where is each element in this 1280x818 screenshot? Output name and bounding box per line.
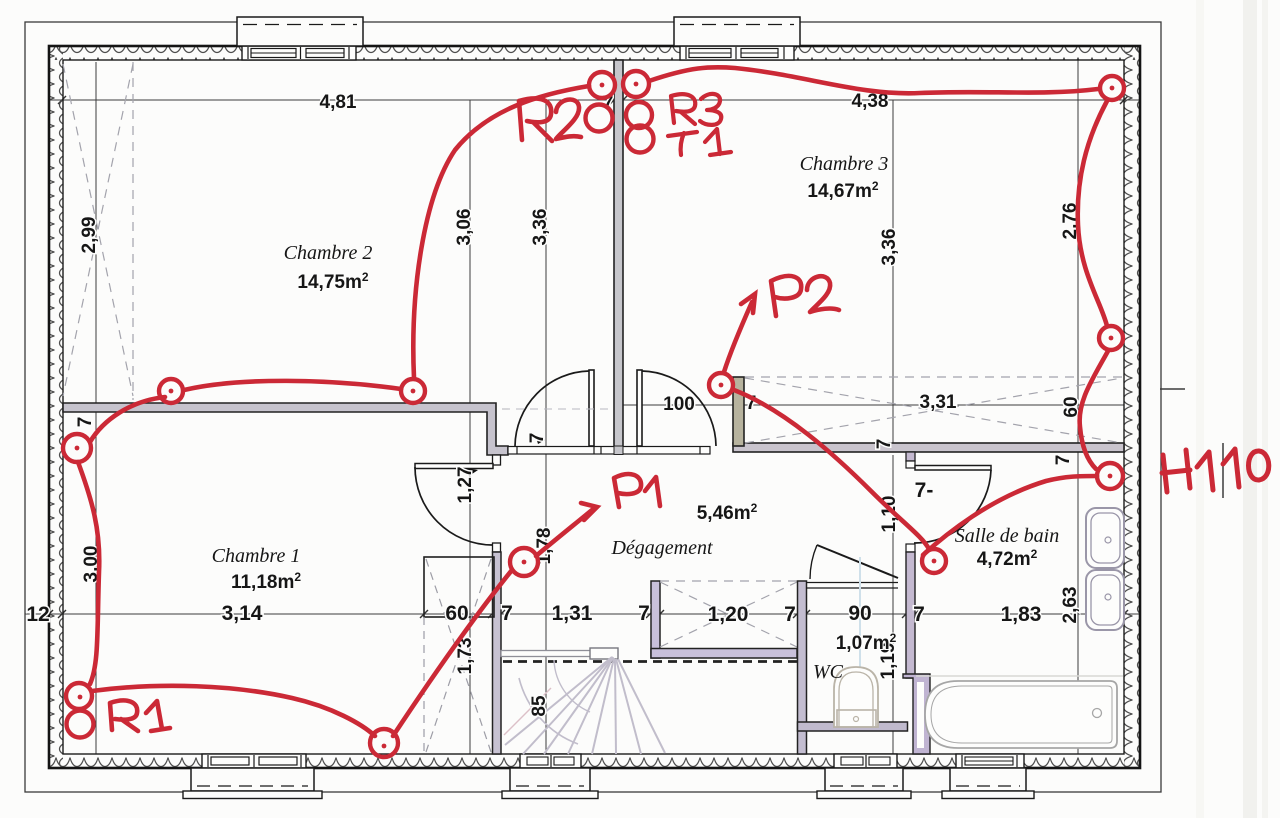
svg-text:7: 7 [1053,455,1074,466]
svg-text:5,46m2: 5,46m2 [697,501,758,524]
svg-text:7: 7 [913,603,925,626]
svg-text:WC: WC [813,661,844,683]
svg-text:4,81: 4,81 [320,92,357,113]
svg-text:60: 60 [445,602,468,625]
svg-text:2,99: 2,99 [79,217,100,254]
svg-text:7: 7 [874,439,895,450]
svg-text:1,27: 1,27 [455,467,476,504]
svg-text:7: 7 [527,433,548,444]
svg-text:Dégagement: Dégagement [610,537,713,559]
svg-text:90: 90 [848,602,871,625]
svg-text:Salle de bain: Salle de bain [955,525,1059,547]
svg-text:Chambre 1: Chambre 1 [212,545,301,567]
svg-text:11,18m2: 11,18m2 [231,570,301,593]
svg-text:4,72m2: 4,72m2 [977,547,1038,570]
svg-text:12: 12 [26,603,49,626]
svg-text:7: 7 [784,603,796,626]
svg-text:3,36: 3,36 [879,229,900,266]
svg-text:100: 100 [663,394,695,415]
svg-text:3,14: 3,14 [222,602,263,625]
svg-text:7: 7 [75,417,96,428]
svg-text:3,36: 3,36 [530,209,551,246]
svg-text:2,63: 2,63 [1060,587,1081,624]
svg-text:3,31: 3,31 [920,392,957,413]
svg-text:85: 85 [529,695,550,717]
svg-text:1,07m2: 1,07m2 [836,631,897,654]
svg-text:7-: 7- [915,479,934,502]
svg-text:14,67m2: 14,67m2 [807,179,878,202]
svg-text:1,31: 1,31 [552,602,593,625]
svg-text:Chambre 2: Chambre 2 [284,242,373,264]
svg-text:Chambre 3: Chambre 3 [800,153,889,175]
svg-text:7: 7 [501,602,513,625]
svg-text:14,75m2: 14,75m2 [297,270,368,293]
svg-text:7: 7 [638,602,650,625]
svg-text:1,20: 1,20 [708,603,749,626]
svg-text:1,83: 1,83 [1001,603,1042,626]
svg-text:3,06: 3,06 [454,209,475,246]
